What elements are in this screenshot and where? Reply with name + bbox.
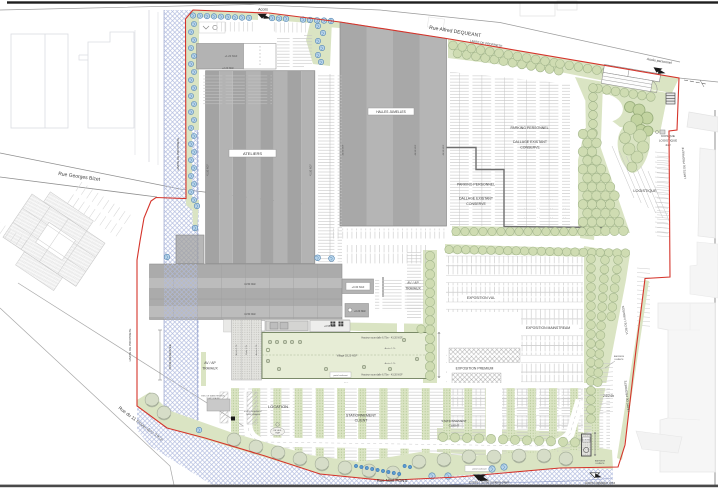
svg-text:Accès 1.7k: Accès 1.7k bbox=[385, 362, 397, 365]
svg-text:· ·: · · bbox=[563, 198, 566, 202]
svg-text:EXPOSITION PREMIUM: EXPOSITION PREMIUM bbox=[456, 367, 494, 371]
svg-text:+0.20 NGF: +0.20 NGF bbox=[354, 310, 366, 313]
svg-text:· ·: · · bbox=[563, 207, 566, 211]
svg-text:Accès 1.7k: Accès 1.7k bbox=[255, 344, 258, 356]
svg-text:41.50 NGF: 41.50 NGF bbox=[310, 164, 313, 176]
svg-text:LOGISTIQUE: LOGISTIQUE bbox=[659, 139, 677, 143]
svg-text:Accès 1.7k: Accès 1.7k bbox=[235, 344, 238, 356]
svg-text:KIOSQUE: KIOSQUE bbox=[661, 134, 675, 138]
svg-text:+1.20 NGF: +1.20 NGF bbox=[225, 54, 238, 58]
svg-text:40.35 M2: 40.35 M2 bbox=[582, 440, 590, 442]
svg-text:41.50 NGF: 41.50 NGF bbox=[244, 283, 256, 286]
svg-text:Rails 1.7k: Rails 1.7k bbox=[246, 344, 248, 355]
svg-text:LOGISTIQUE: LOGISTIQUE bbox=[633, 189, 657, 193]
svg-text:Hauteur sous-dalle 6.75m - 4: Hauteur sous-dalle 6.75m - 43.20 NGF bbox=[361, 374, 403, 377]
svg-text:LIMITE DE PROPRIETE: LIMITE DE PROPRIETE bbox=[176, 138, 180, 171]
svg-text:LOCATION: LOCATION bbox=[268, 404, 288, 409]
svg-text:CLIENT: CLIENT bbox=[355, 419, 369, 423]
svg-text:44.90 NGF: 44.90 NGF bbox=[443, 144, 445, 155]
svg-text:PARKING PERSONNEL: PARKING PERSONNEL bbox=[510, 126, 548, 130]
svg-text:STATIONNEMENT: STATIONNEMENT bbox=[346, 414, 377, 418]
svg-text:BARRIERE: BARRIERE bbox=[595, 460, 606, 463]
svg-text:BARRIERE: BARRIERE bbox=[614, 355, 625, 358]
svg-text:41.50 NGF: 41.50 NGF bbox=[244, 313, 256, 316]
svg-text:Accès: Accès bbox=[258, 8, 268, 12]
svg-text:44.90 NGF: 44.90 NGF bbox=[343, 144, 345, 155]
svg-text:· ·: · · bbox=[550, 207, 553, 211]
svg-text:TRAVAUX: TRAVAUX bbox=[202, 367, 218, 371]
svg-text:HALLES JUMELLES: HALLES JUMELLES bbox=[376, 110, 406, 114]
svg-text:Accès 1.7k: Accès 1.7k bbox=[385, 347, 397, 350]
svg-text:TEMPORAIRE: TEMPORAIRE bbox=[246, 413, 261, 416]
svg-text:portail coulissant: portail coulissant bbox=[333, 374, 348, 377]
svg-text:Hauteur sous-dalle 6.75m - 4: Hauteur sous-dalle 6.75m - 43.20 NGF bbox=[361, 337, 403, 340]
svg-text:DALLAGE EXISTANT: DALLAGE EXISTANT bbox=[459, 197, 494, 201]
svg-text:· ·: · · bbox=[550, 216, 553, 220]
svg-text:AV / AP: AV / AP bbox=[204, 361, 216, 365]
svg-text:· ·: · · bbox=[524, 198, 527, 202]
svg-text:· ·: · · bbox=[537, 216, 540, 220]
svg-text:· ·: · · bbox=[524, 216, 527, 220]
svg-text:· ·: · · bbox=[550, 198, 553, 202]
svg-text:· ·: · · bbox=[537, 198, 540, 202]
svg-text:· ·: · · bbox=[524, 207, 527, 211]
svg-text:EXPOSITION MAINSTREAM: EXPOSITION MAINSTREAM bbox=[526, 326, 570, 330]
svg-text:+0.30 NGF: +0.30 NGF bbox=[352, 285, 365, 289]
svg-text:portail coulissant: portail coulissant bbox=[472, 468, 487, 471]
svg-text:44.90 NGF: 44.90 NGF bbox=[415, 144, 417, 155]
svg-text:LEVANTE: LEVANTE bbox=[596, 462, 606, 465]
svg-text:TRAP: TRAP bbox=[275, 432, 281, 435]
svg-text:· ·: · · bbox=[563, 216, 566, 220]
svg-text:· ·: · · bbox=[537, 207, 540, 211]
svg-text:+2.20 NGF: +2.20 NGF bbox=[222, 67, 234, 70]
svg-text:STATIONNEMENT: STATIONNEMENT bbox=[441, 419, 466, 423]
svg-text:Entrée / Sortie parking client: Entrée / Sortie parking client bbox=[469, 481, 509, 485]
svg-text:Rue Noel PONS: Rue Noel PONS bbox=[377, 478, 408, 483]
svg-text:CONSERVE: CONSERVE bbox=[466, 202, 486, 206]
svg-text:DALLAGE EXISTANT: DALLAGE EXISTANT bbox=[513, 140, 548, 144]
svg-text:4m²: 4m² bbox=[665, 143, 670, 147]
svg-text:LEVANTE: LEVANTE bbox=[615, 358, 625, 361]
svg-text:41.50 NGF: 41.50 NGF bbox=[207, 164, 210, 176]
svg-text:LIMITE DE PROPRIETE: LIMITE DE PROPRIETE bbox=[128, 329, 132, 362]
svg-text:ATELIERS: ATELIERS bbox=[243, 151, 262, 156]
svg-text:STATIONNEMENT: STATIONNEMENT bbox=[244, 410, 263, 413]
svg-text:ZONE RESERVEE: ZONE RESERVEE bbox=[168, 344, 172, 369]
svg-text:TEMPORAIRE: TEMPORAIRE bbox=[206, 397, 220, 400]
svg-text:CLIENT: CLIENT bbox=[449, 424, 460, 428]
svg-text:ENS. DE MANUTENTION: ENS. DE MANUTENTION bbox=[201, 395, 225, 398]
svg-text:PARKING PERSONNEL: PARKING PERSONNEL bbox=[457, 183, 495, 187]
svg-text:Village 53.20 NGF: Village 53.20 NGF bbox=[337, 355, 358, 358]
svg-text:EXPOSITION VUL: EXPOSITION VUL bbox=[467, 296, 495, 300]
svg-text:CONSERVE: CONSERVE bbox=[520, 146, 540, 150]
svg-text:Accès logistique crea: Accès logistique crea bbox=[585, 481, 615, 485]
